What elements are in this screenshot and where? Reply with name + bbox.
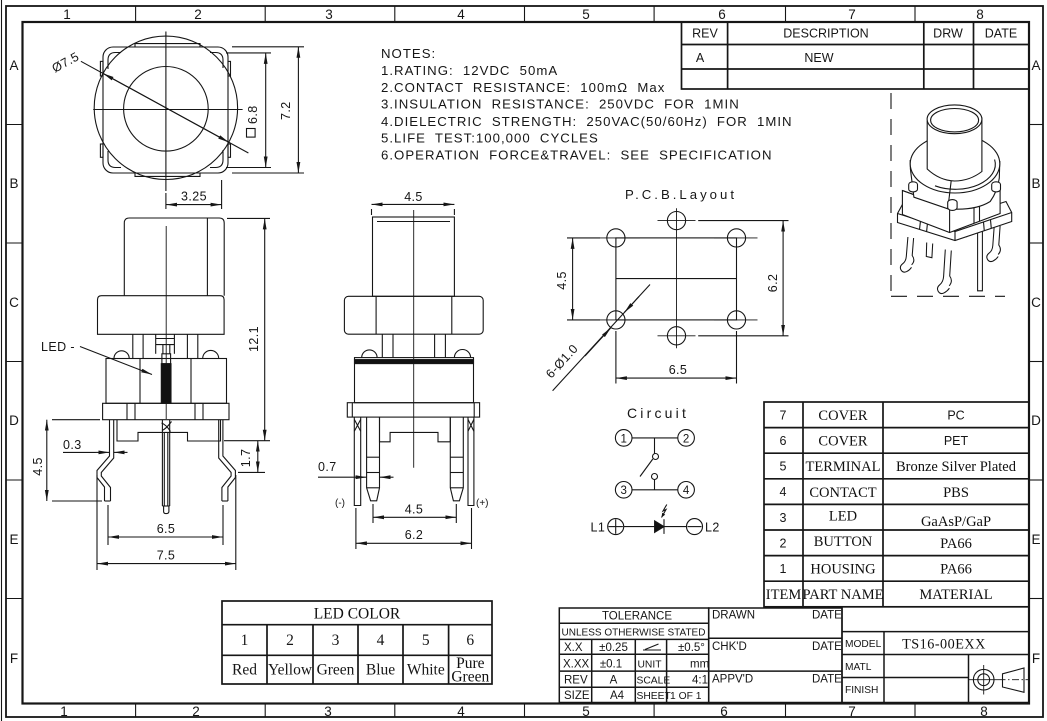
svg-text:3: 3 (324, 704, 332, 719)
svg-text:6: 6 (718, 7, 726, 22)
svg-text:X.XX: X.XX (563, 659, 590, 671)
svg-text:TERMINAL: TERMINAL (806, 459, 881, 475)
svg-text:6: 6 (466, 632, 474, 649)
svg-text:4: 4 (457, 7, 465, 22)
svg-text:X.X: X.X (564, 642, 583, 654)
svg-text:3: 3 (620, 485, 626, 497)
svg-text:SIZE: SIZE (564, 690, 590, 702)
svg-text:A: A (610, 675, 618, 687)
svg-text:COVER: COVER (818, 408, 867, 424)
svg-text:6.5: 6.5 (157, 522, 176, 536)
svg-text:12.1: 12.1 (247, 326, 261, 352)
svg-text:4.5: 4.5 (31, 457, 45, 476)
svg-text:FINISH: FINISH (845, 685, 878, 696)
svg-text:3.INSULATION RESISTANCE: 250: 3.INSULATION RESISTANCE: 250VDC FOR 1MIN (381, 97, 740, 112)
svg-text:Red: Red (232, 662, 257, 679)
svg-text:A: A (696, 51, 705, 65)
svg-text:SHEET: SHEET (637, 691, 672, 702)
svg-text:CHK'D: CHK'D (712, 641, 747, 653)
svg-text:A: A (9, 58, 18, 73)
svg-text:COVER: COVER (818, 434, 867, 450)
svg-text:ITEM: ITEM (766, 587, 802, 603)
svg-text:PA66: PA66 (940, 536, 972, 552)
svg-text:REV: REV (692, 27, 718, 41)
svg-text:SCALE: SCALE (637, 676, 671, 687)
svg-text:MODEL: MODEL (845, 639, 882, 650)
svg-text:mm: mm (690, 659, 709, 671)
svg-text:6.OPERATION FORCE&TRAVEL: SE: 6.OPERATION FORCE&TRAVEL: SEE SPECIFICAT… (381, 148, 773, 163)
svg-text:Green: Green (451, 669, 489, 686)
svg-text:2: 2 (780, 536, 787, 550)
svg-text:4.5: 4.5 (404, 190, 423, 204)
svg-text:A4: A4 (610, 690, 625, 702)
svg-text:4: 4 (683, 485, 690, 497)
svg-text:DATE: DATE (812, 641, 842, 653)
svg-text:1 OF 1: 1 OF 1 (670, 691, 702, 702)
svg-text:Yellow: Yellow (268, 662, 313, 679)
svg-text:±0.25: ±0.25 (599, 642, 628, 654)
svg-text:2: 2 (194, 7, 202, 22)
svg-text:DATE: DATE (812, 674, 842, 686)
svg-text:7: 7 (848, 7, 856, 22)
svg-text:±0.5°: ±0.5° (678, 642, 705, 654)
svg-text:TOLERANCE: TOLERANCE (602, 611, 672, 623)
svg-text:7.5: 7.5 (157, 549, 176, 563)
svg-text:1.7: 1.7 (239, 449, 253, 468)
svg-text:4.DIELECTRIC STRENGTH: 250VA: 4.DIELECTRIC STRENGTH: 250VAC(50/60Hz) F… (381, 114, 793, 129)
svg-text:6.2: 6.2 (766, 274, 780, 293)
svg-text:3: 3 (325, 7, 333, 22)
svg-text:1: 1 (63, 7, 71, 22)
svg-text:2.CONTACT RESISTANCE: 100mΩ: 2.CONTACT RESISTANCE: 100mΩ Max (381, 80, 665, 95)
svg-text:REV: REV (564, 675, 588, 687)
svg-text:LED: LED (829, 508, 857, 524)
svg-text:1: 1 (60, 704, 68, 719)
svg-text:PET: PET (944, 434, 969, 448)
svg-text:MATL: MATL (845, 662, 872, 673)
svg-text:(+): (+) (476, 498, 489, 509)
svg-text:DRW: DRW (933, 27, 963, 41)
svg-text:C: C (9, 295, 19, 310)
svg-text:White: White (407, 662, 445, 679)
svg-text:5: 5 (582, 704, 590, 719)
svg-text:5.LIFE TEST:100,000 CYCLES: 5.LIFE TEST:100,000 CYCLES (381, 131, 599, 146)
svg-text:6: 6 (780, 434, 787, 448)
svg-text:F: F (1032, 651, 1040, 666)
svg-text:1: 1 (241, 632, 249, 649)
svg-text:NOTES:: NOTES: (381, 46, 436, 61)
svg-text:L1: L1 (591, 521, 606, 535)
svg-text:6: 6 (720, 704, 728, 719)
svg-text:DRAWN: DRAWN (712, 610, 755, 622)
svg-text:UNLESS OTHERWISE STATED: UNLESS OTHERWISE STATED (562, 628, 706, 639)
svg-text:5: 5 (780, 460, 787, 474)
svg-text:0.7: 0.7 (318, 460, 337, 474)
svg-text:B: B (9, 176, 18, 191)
svg-text:5: 5 (582, 7, 590, 22)
svg-text:±0.1: ±0.1 (600, 659, 622, 671)
svg-text:4: 4 (457, 704, 465, 719)
svg-text:4:1: 4:1 (692, 675, 708, 687)
svg-text:PART NAME: PART NAME (803, 587, 884, 603)
svg-text:APPV'D: APPV'D (712, 674, 753, 686)
svg-text:CONTACT: CONTACT (809, 485, 876, 501)
svg-text:DATE: DATE (812, 610, 842, 622)
svg-text:C: C (1031, 295, 1041, 310)
svg-text:DATE: DATE (985, 27, 1017, 41)
svg-text:8: 8 (976, 7, 984, 22)
svg-text:3: 3 (332, 632, 340, 649)
svg-text:4.5: 4.5 (405, 503, 424, 517)
svg-text:3.25: 3.25 (181, 190, 207, 204)
svg-text:Bronze Silver Plated: Bronze Silver Plated (896, 459, 1017, 475)
svg-text:GaAsP/GaP: GaAsP/GaP (921, 514, 991, 530)
svg-text:(-): (-) (335, 498, 345, 509)
svg-text:HOUSING: HOUSING (810, 562, 876, 578)
svg-text:B: B (1031, 176, 1040, 191)
svg-text:4: 4 (377, 632, 385, 649)
svg-text:0.3: 0.3 (63, 438, 82, 452)
svg-text:1.RATING: 12VDC 50mA: 1.RATING: 12VDC 50mA (381, 63, 558, 78)
svg-text:PC: PC (947, 409, 964, 423)
svg-text:1: 1 (780, 562, 787, 576)
svg-text:NEW: NEW (804, 51, 833, 65)
svg-text:Circuit: Circuit (627, 405, 689, 421)
svg-text:MATERIAL: MATERIAL (919, 587, 992, 603)
svg-text:F: F (10, 651, 18, 666)
svg-text:A: A (1031, 58, 1040, 73)
svg-text:5: 5 (422, 632, 430, 649)
svg-text:6.8: 6.8 (246, 105, 260, 124)
svg-text:4.5: 4.5 (555, 271, 569, 290)
svg-text:UNIT: UNIT (638, 660, 663, 671)
svg-text:DESCRIPTION: DESCRIPTION (783, 27, 868, 41)
svg-text:PBS: PBS (943, 485, 969, 501)
svg-text:BUTTON: BUTTON (814, 534, 873, 550)
svg-text:7: 7 (780, 409, 787, 423)
svg-text:1: 1 (620, 433, 626, 445)
svg-text:LED -: LED - (41, 340, 75, 354)
svg-text:2: 2 (286, 632, 294, 649)
svg-text:LED COLOR: LED COLOR (314, 606, 401, 623)
svg-text:Green: Green (317, 662, 355, 679)
svg-text:E: E (9, 532, 18, 547)
svg-text:8: 8 (980, 704, 988, 719)
svg-text:D: D (1031, 413, 1041, 428)
svg-text:6.2: 6.2 (405, 528, 424, 542)
svg-text:PA66: PA66 (940, 562, 972, 578)
svg-text:P.C.B.Layout: P.C.B.Layout (625, 187, 737, 202)
svg-text:2: 2 (683, 433, 689, 445)
svg-text:TS16-00EXX: TS16-00EXX (902, 637, 986, 653)
svg-text:6.5: 6.5 (669, 363, 688, 377)
svg-text:Blue: Blue (366, 662, 395, 679)
svg-text:2: 2 (192, 704, 200, 719)
svg-text:L2: L2 (705, 521, 720, 535)
svg-text:7.2: 7.2 (279, 101, 293, 120)
svg-text:4: 4 (780, 485, 787, 499)
svg-text:E: E (1031, 532, 1040, 547)
svg-text:D: D (9, 413, 19, 428)
svg-text:3: 3 (780, 511, 787, 525)
svg-text:7: 7 (848, 704, 856, 719)
